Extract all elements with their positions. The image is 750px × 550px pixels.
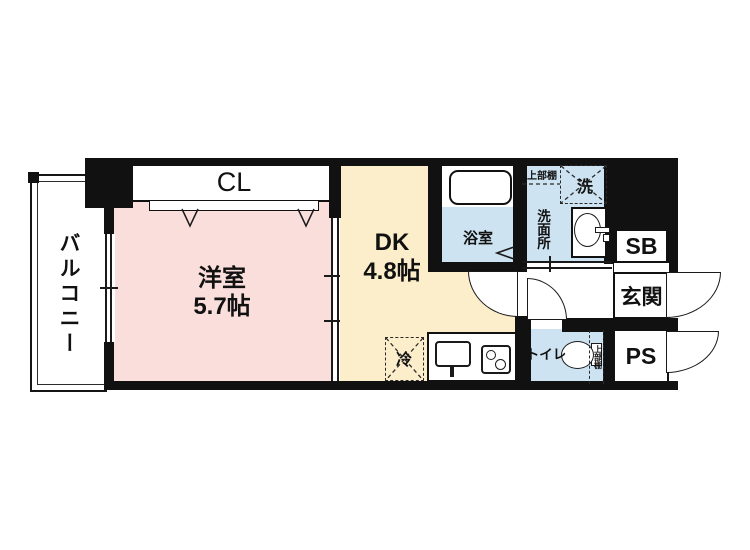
- dk-label: DK 4.8帖: [330, 226, 454, 288]
- pipe-space-label: PS: [626, 343, 657, 370]
- sliding-door-tick-2: [324, 320, 340, 322]
- kitchen-sink: [435, 341, 471, 367]
- bathroom-label: 浴室: [447, 228, 509, 246]
- washbasin-faucet-knob: [603, 234, 610, 242]
- window-left-tick: [100, 287, 118, 289]
- floor-plan: SB 玄関 PS 洗 上部棚 冷 上部棚: [0, 0, 750, 550]
- western-room-label: 洋室 5.7帖: [132, 263, 312, 323]
- closet-label: CL: [131, 164, 337, 200]
- wall-top-right-block: [606, 158, 678, 231]
- shoe-box-label: SB: [626, 233, 658, 260]
- pipe-space-box: PS: [613, 329, 669, 383]
- entrance-door-swing: [666, 272, 721, 318]
- dk-size: 4.8帖: [363, 257, 420, 286]
- kitchen-faucet: [450, 367, 454, 377]
- stove-burner-1: [486, 350, 496, 360]
- washing-machine-label: 洗: [572, 172, 598, 198]
- toilet-upper-shelf: 上部棚: [589, 330, 604, 384]
- stove-burner-2: [495, 359, 506, 370]
- refrigerator-label: 冷: [391, 345, 417, 371]
- ps-door-swing: [666, 331, 719, 373]
- closet-door-track: [149, 200, 319, 211]
- balcony-corner-marker: [28, 172, 39, 183]
- entrance-area: 玄関: [613, 272, 670, 319]
- western-room-size: 5.7帖: [193, 293, 250, 321]
- toilet-label: トイレ: [527, 345, 565, 361]
- bathtub: [449, 170, 512, 205]
- washroom-label: 洗面所: [533, 199, 551, 259]
- entrance-label: 玄関: [621, 281, 663, 311]
- washroom-threshold-line-2: [522, 267, 612, 269]
- toilet-upper-shelf-label: 上部棚: [592, 332, 604, 382]
- washbasin-faucet: [595, 227, 610, 233]
- balcony-label: バルコニー: [55, 218, 81, 370]
- shoe-box: SB: [615, 229, 668, 263]
- washroom-upper-shelf-label: 上部棚: [523, 167, 561, 181]
- washroom-threshold-line-1: [522, 261, 612, 263]
- wall-left-upper: [104, 200, 114, 238]
